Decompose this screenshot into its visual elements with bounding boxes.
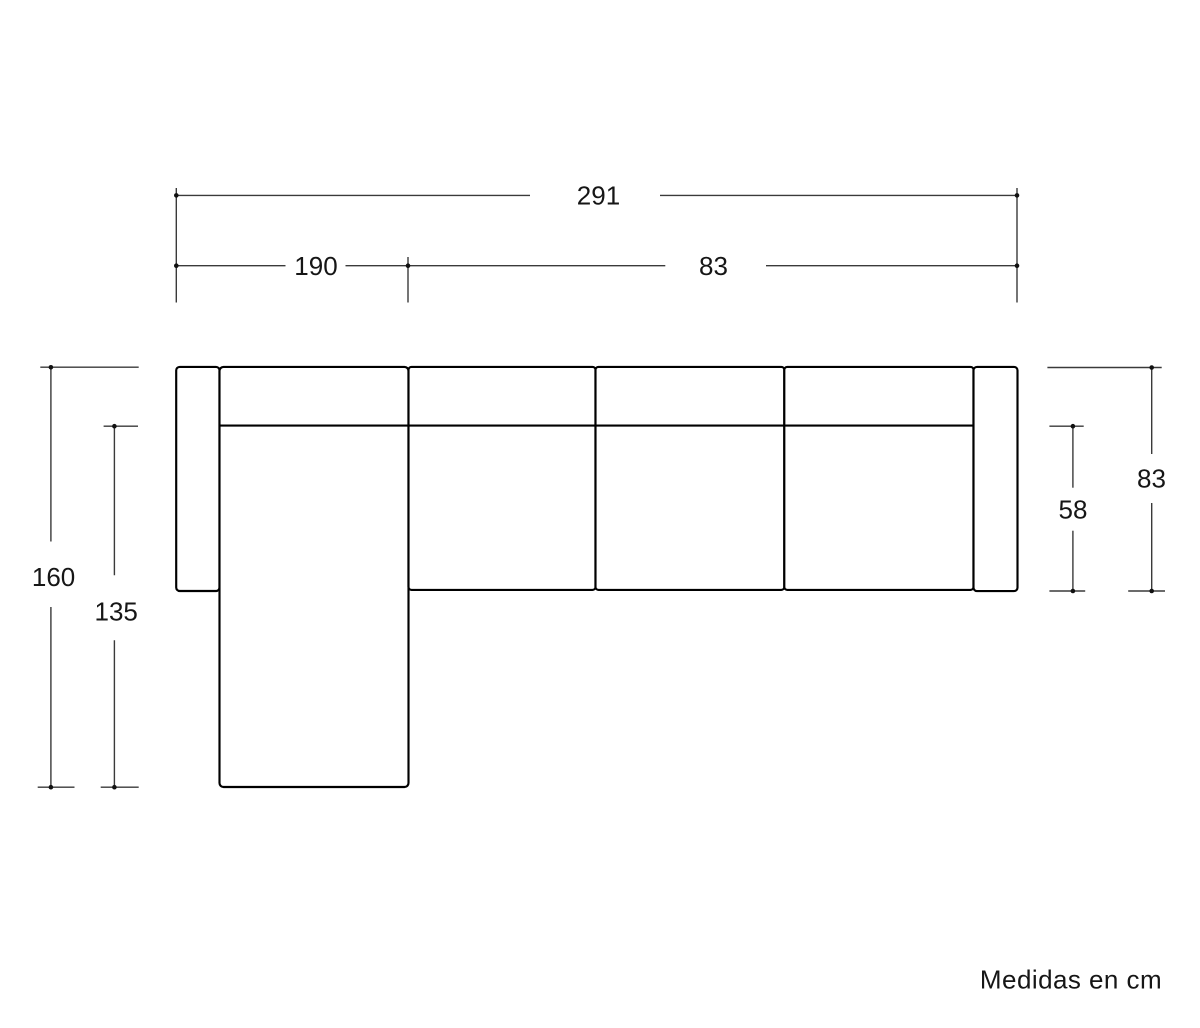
svg-text:83: 83 bbox=[1137, 464, 1166, 494]
svg-text:190: 190 bbox=[294, 251, 337, 281]
svg-text:83: 83 bbox=[699, 251, 728, 281]
svg-text:135: 135 bbox=[95, 596, 138, 626]
svg-text:160: 160 bbox=[32, 562, 75, 592]
svg-text:58: 58 bbox=[1059, 495, 1088, 525]
svg-text:291: 291 bbox=[577, 181, 620, 211]
svg-text:Medidas en cm: Medidas en cm bbox=[980, 965, 1162, 995]
